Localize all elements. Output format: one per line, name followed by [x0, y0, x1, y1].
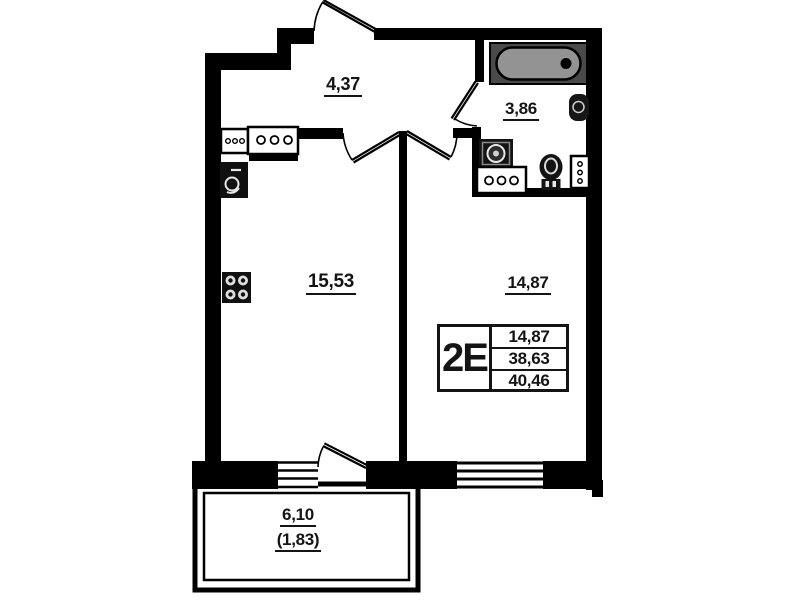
bathtub-icon — [490, 43, 587, 84]
bath-cabinet-icon — [571, 156, 589, 188]
room-label-balcony: 6,10 — [263, 506, 333, 527]
info-table-row-room-area: 14,87 — [492, 327, 566, 347]
bath-sink-icon — [569, 94, 589, 121]
balcony-window — [278, 461, 318, 489]
info-table-row-total-area: 40,46 — [492, 369, 566, 391]
room-label-kitchen-living: 15,53 — [296, 272, 366, 295]
room-door — [406, 131, 458, 160]
toilet-icon — [540, 154, 563, 190]
room-window — [457, 461, 543, 489]
bathroom-area: 3,86 — [503, 100, 539, 121]
hallway-area: 4,37 — [324, 75, 362, 97]
info-table-row-living-area: 38,63 — [492, 347, 566, 369]
room-label-bathroom: 3,86 — [486, 100, 556, 121]
room-label-balcony-coefficient: (1,83) — [258, 531, 338, 552]
bathroom-door — [452, 81, 479, 126]
room-area: 14,87 — [505, 274, 550, 295]
floor-plan: 4,37 3,86 15,53 14,87 6,10 (1,83) 2E 14,… — [0, 0, 799, 600]
floor-plan-drawing — [0, 0, 799, 600]
entrance-door — [314, 0, 377, 32]
kitchen-sink-icon — [220, 162, 248, 198]
room-label-hallway: 4,37 — [308, 75, 378, 97]
apartment-type-label: 2E — [440, 327, 492, 389]
stove-icon — [222, 272, 251, 303]
kitchen-door — [343, 132, 401, 163]
balcony-door — [318, 443, 367, 468]
washing-machine-icon — [479, 139, 513, 168]
room-label-room: 14,87 — [493, 274, 563, 295]
kitchen-counter-icon — [248, 127, 298, 161]
info-table-rows: 14,87 38,63 40,46 — [492, 327, 566, 389]
info-table: 2E 14,87 38,63 40,46 — [437, 324, 569, 392]
kitchen-living-area: 15,53 — [306, 272, 356, 295]
balcony-area: 6,10 — [280, 506, 316, 527]
balcony-area-coefficient: (1,83) — [275, 531, 322, 552]
kitchen-counter-small-icon — [221, 129, 248, 153]
bath-counter-icon — [477, 167, 526, 193]
walls — [192, 28, 603, 497]
